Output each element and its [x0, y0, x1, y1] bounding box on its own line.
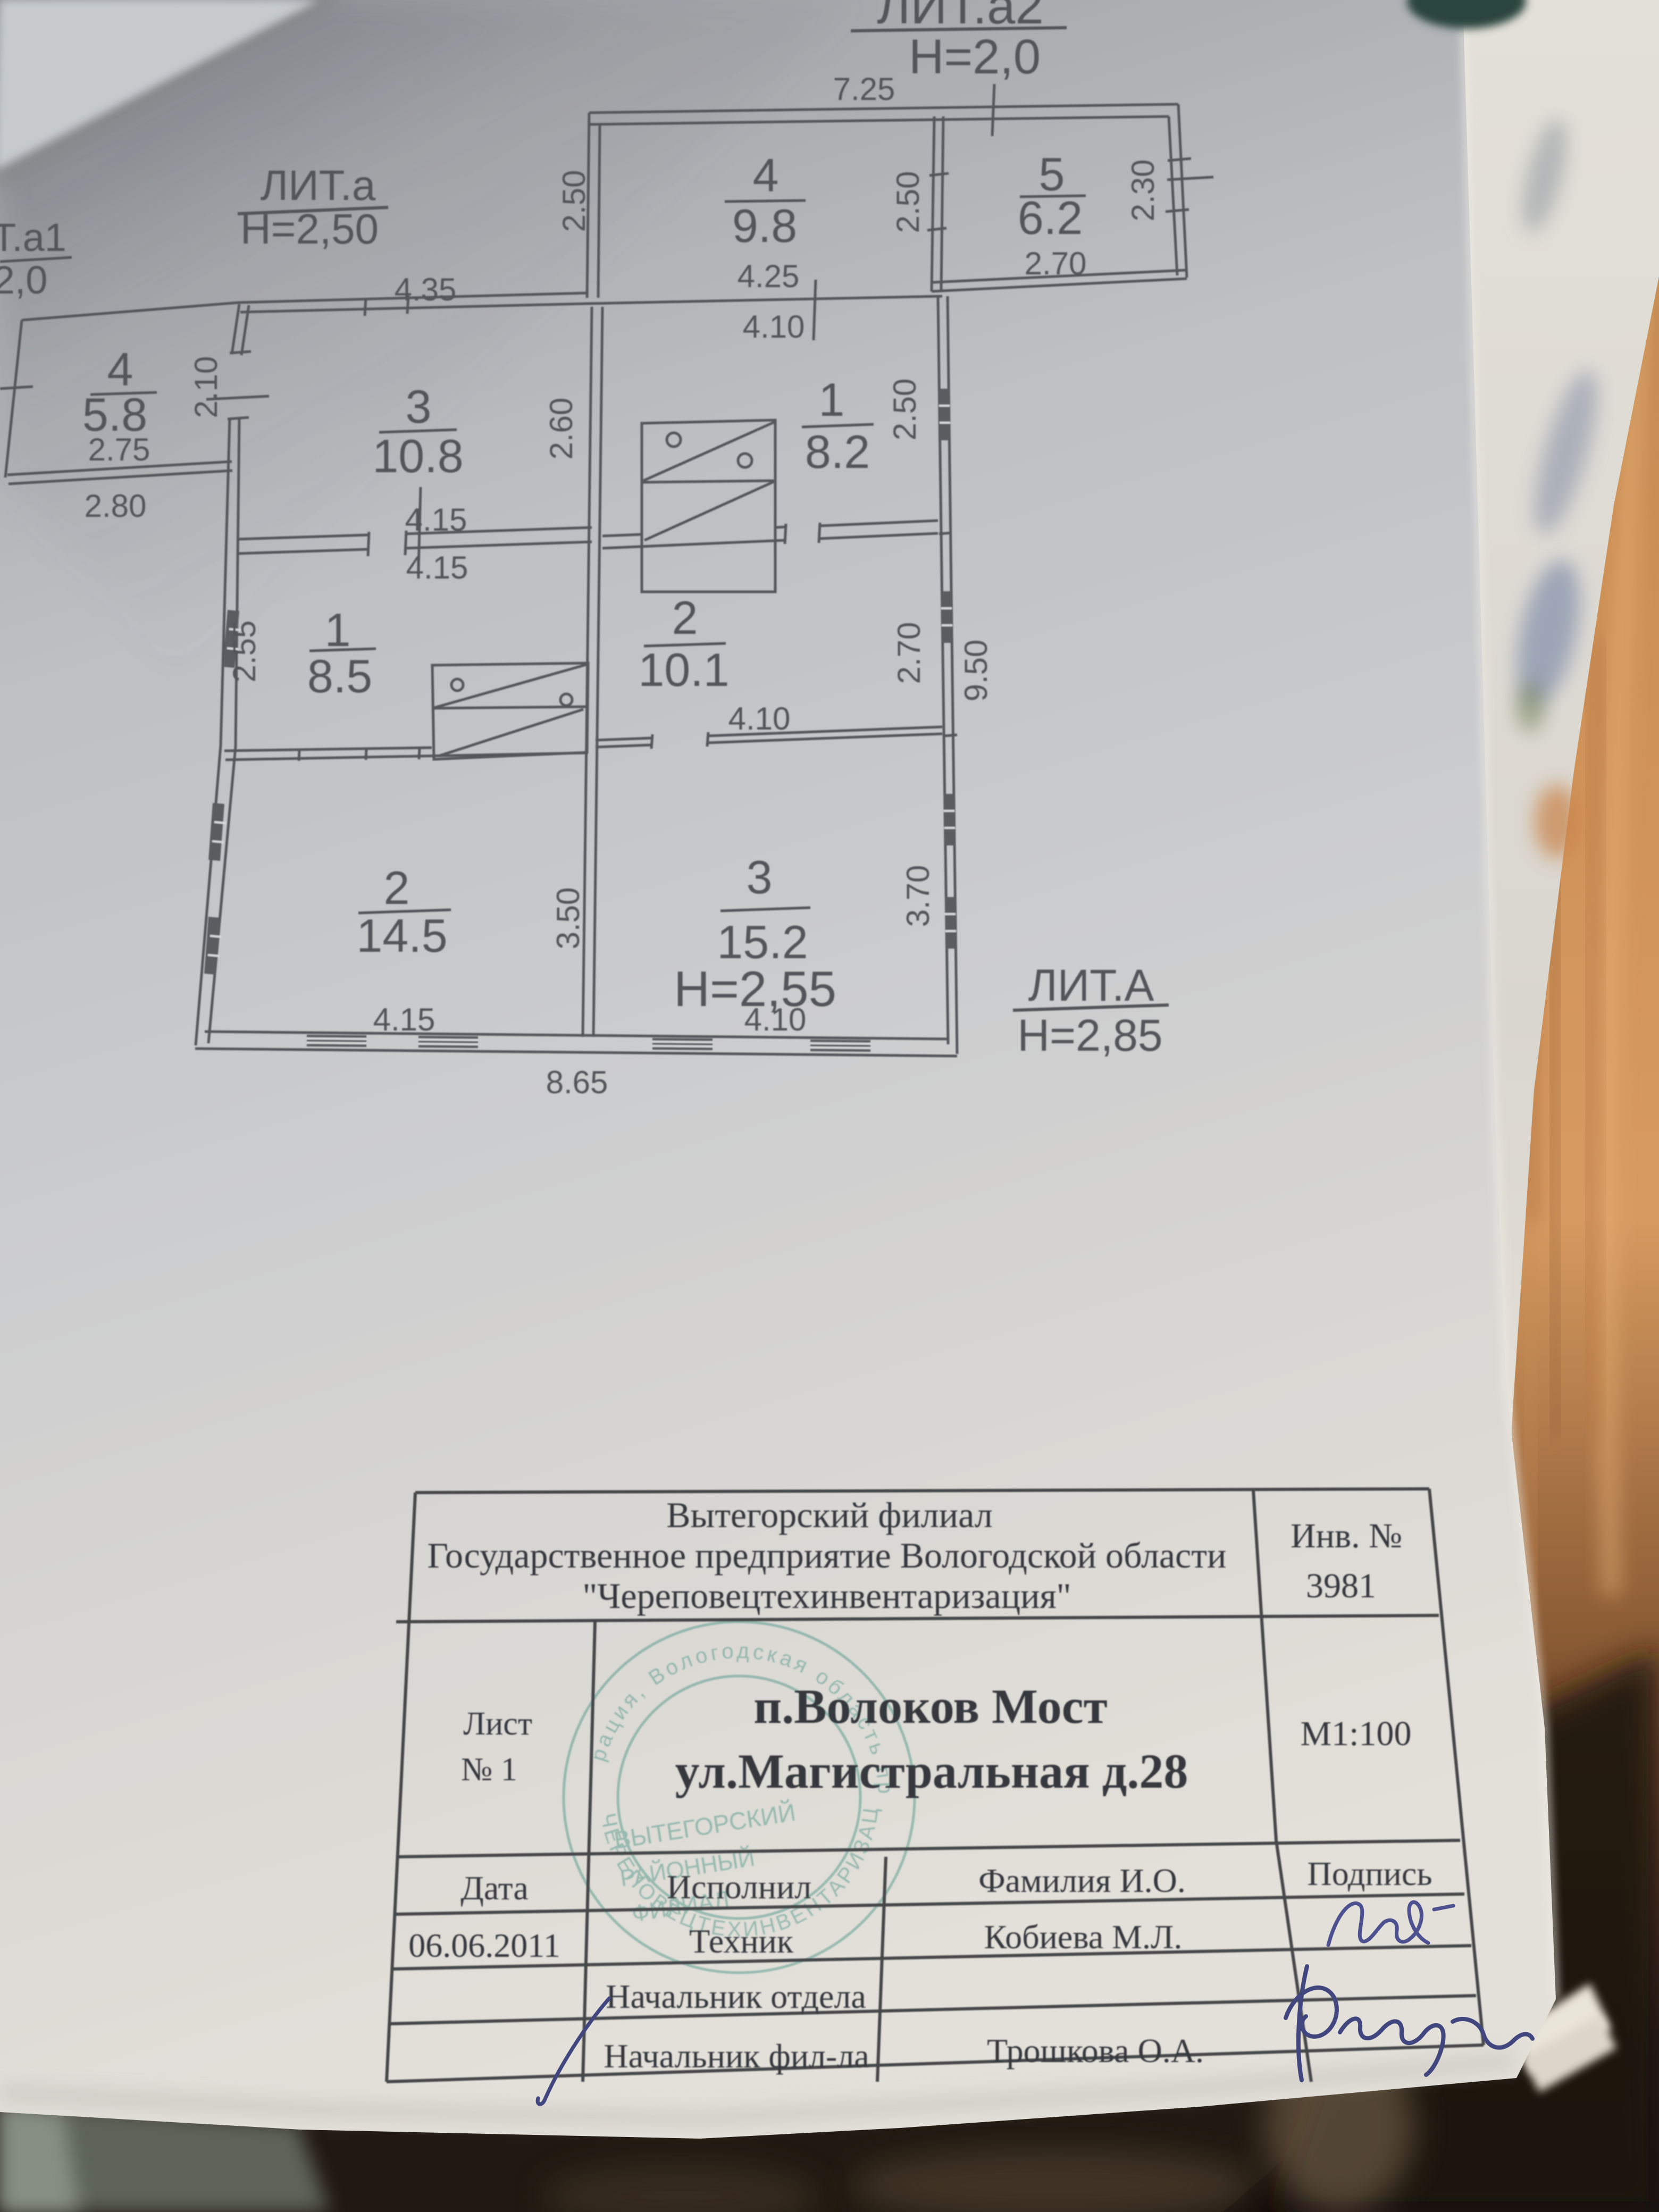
svg-text:Начальник фил-ла: Начальник фил-ла	[604, 2037, 869, 2075]
svg-text:4.15: 4.15	[406, 550, 468, 585]
svg-text:Н=2,50: Н=2,50	[240, 205, 379, 253]
svg-text:8.65: 8.65	[546, 1065, 608, 1100]
svg-text:2.60: 2.60	[543, 398, 579, 460]
svg-text:М1:100: М1:100	[1300, 1714, 1411, 1753]
svg-text:2.80: 2.80	[85, 488, 147, 524]
svg-text:2.70: 2.70	[891, 622, 927, 684]
svg-text:2: 2	[384, 861, 410, 914]
svg-text:2,0: 2,0	[0, 258, 47, 302]
svg-text:Кобиева М.Л.: Кобиева М.Л.	[984, 1918, 1183, 1956]
svg-text:8.2: 8.2	[805, 425, 870, 478]
svg-text:2.70: 2.70	[1025, 246, 1087, 281]
svg-text:4.10: 4.10	[728, 701, 791, 736]
svg-text:2.55: 2.55	[227, 621, 262, 683]
svg-text:2: 2	[672, 591, 698, 644]
svg-text:Исполнил: Исполнил	[667, 1868, 811, 1906]
svg-text:Н=2,85: Н=2,85	[1017, 1010, 1162, 1060]
svg-text:4.15: 4.15	[405, 502, 467, 538]
svg-text:2.75: 2.75	[88, 432, 150, 467]
svg-text:3.70: 3.70	[900, 865, 936, 927]
svg-text:Трошкова О.А.: Трошкова О.А.	[987, 2032, 1204, 2069]
svg-text:3: 3	[747, 851, 773, 903]
svg-text:14.5: 14.5	[356, 909, 447, 962]
svg-text:10.1: 10.1	[638, 643, 729, 696]
svg-text:2.10: 2.10	[188, 356, 224, 418]
svg-text:8.5: 8.5	[307, 650, 372, 702]
svg-text:Подпись: Подпись	[1307, 1855, 1432, 1892]
svg-text:10.8: 10.8	[372, 430, 463, 482]
svg-text:№ 1: № 1	[461, 1752, 517, 1788]
svg-text:Т.а1: Т.а1	[0, 215, 66, 259]
svg-text:9.50: 9.50	[958, 640, 994, 702]
svg-text:Н=2,0: Н=2,0	[909, 30, 1041, 84]
svg-text:Начальник отдела: Начальник отдела	[606, 1978, 866, 2015]
svg-text:Дата: Дата	[460, 1869, 529, 1907]
svg-text:"Череповецтехинвентаризация": "Череповецтехинвентаризация"	[582, 1576, 1071, 1616]
svg-text:4.25: 4.25	[738, 258, 800, 294]
svg-text:1: 1	[819, 373, 845, 426]
svg-text:п.Волоков Мост: п.Волоков Мост	[753, 1679, 1108, 1733]
svg-text:7.25: 7.25	[833, 71, 895, 107]
svg-text:Техник: Техник	[689, 1922, 794, 1960]
svg-text:ЛИТ.а: ЛИТ.а	[261, 162, 376, 209]
svg-text:4: 4	[753, 149, 779, 202]
svg-text:2.50: 2.50	[890, 171, 926, 233]
svg-text:ЛИТ.А: ЛИТ.А	[1028, 960, 1154, 1010]
svg-text:1: 1	[325, 604, 351, 656]
svg-text:3.50: 3.50	[550, 887, 586, 950]
svg-text:2.50: 2.50	[556, 170, 592, 232]
svg-text:4.35: 4.35	[395, 272, 457, 307]
svg-text:Лист: Лист	[463, 1706, 532, 1742]
svg-text:6.2: 6.2	[1018, 191, 1083, 244]
svg-text:4.10: 4.10	[744, 1002, 807, 1037]
svg-text:Фамилия И.О.: Фамилия И.О.	[978, 1862, 1186, 1899]
svg-text:9.8: 9.8	[732, 199, 797, 252]
svg-text:ул.Магистральная д.28: ул.Магистральная д.28	[675, 1744, 1188, 1798]
svg-text:Инв. №: Инв. №	[1291, 1516, 1402, 1555]
svg-text:4.10: 4.10	[743, 309, 805, 345]
svg-text:2.50: 2.50	[887, 379, 923, 441]
svg-text:2.30: 2.30	[1125, 160, 1161, 222]
svg-text:3981: 3981	[1306, 1566, 1376, 1605]
svg-text:Государственное предприятие Во: Государственное предприятие Вологодской …	[428, 1535, 1227, 1576]
svg-text:06.06.2011: 06.06.2011	[408, 1926, 560, 1964]
svg-text:3: 3	[406, 380, 432, 433]
svg-text:Вытегорский филиал: Вытегорский филиал	[666, 1495, 993, 1535]
svg-text:4.15: 4.15	[373, 1002, 435, 1037]
